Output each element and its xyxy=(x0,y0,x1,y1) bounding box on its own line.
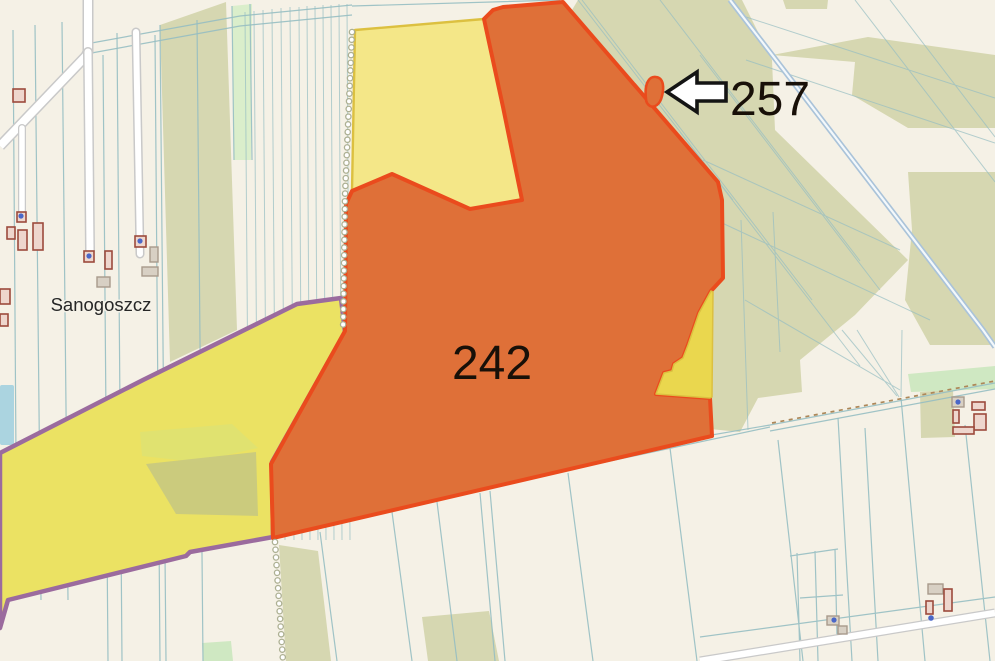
building xyxy=(928,584,943,594)
address-dot xyxy=(928,615,934,621)
parcel-242-label: 242 xyxy=(452,337,532,390)
parcel-257-label: 257 xyxy=(730,73,810,126)
building xyxy=(142,267,158,276)
address-dot xyxy=(18,213,23,218)
building xyxy=(150,247,158,262)
building xyxy=(105,251,112,269)
building xyxy=(7,227,15,239)
building xyxy=(926,601,933,614)
building xyxy=(97,277,110,287)
building xyxy=(972,402,985,410)
building xyxy=(0,314,8,326)
building xyxy=(838,626,847,634)
place-label: Sanogoszcz xyxy=(51,294,152,315)
building xyxy=(974,414,986,430)
building xyxy=(13,89,25,102)
building xyxy=(953,410,959,423)
address-dot xyxy=(86,253,91,258)
address-dot xyxy=(955,399,960,404)
building xyxy=(953,427,974,434)
address-dot xyxy=(831,617,836,622)
map-svg: Sanogoszcz 242 257 xyxy=(0,0,995,661)
water-area xyxy=(0,385,14,445)
building xyxy=(18,230,27,250)
parcel-257-polygon[interactable] xyxy=(646,77,664,107)
map-canvas[interactable]: Sanogoszcz 242 257 xyxy=(0,0,995,661)
building xyxy=(33,223,43,250)
address-dot xyxy=(137,238,142,243)
building xyxy=(0,289,10,304)
building xyxy=(944,589,952,611)
